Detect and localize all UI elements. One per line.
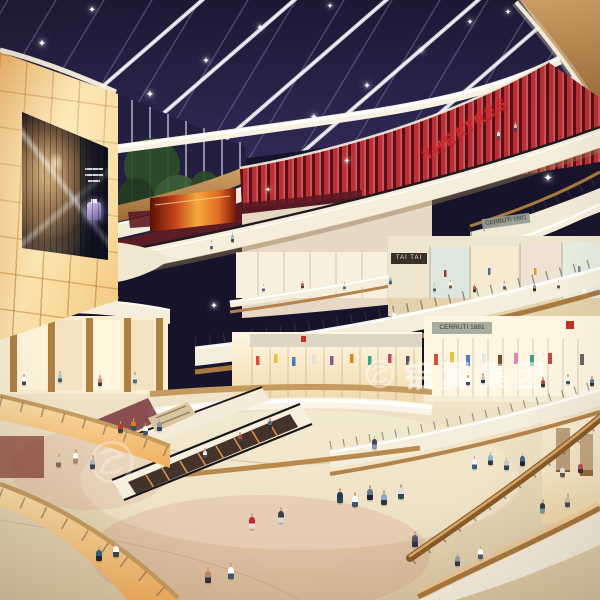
shopper-figure [381, 490, 387, 505]
shopper-figure [96, 546, 102, 561]
shopper-figure [520, 453, 525, 466]
shopper-figure [131, 418, 136, 430]
shopper-figure [533, 283, 536, 291]
shopper-figure [143, 423, 148, 435]
shopper-figure [90, 455, 95, 469]
shopper-figure [557, 280, 560, 288]
shopper-figure [472, 456, 477, 469]
shopper-figure [372, 436, 377, 449]
shopper-figure [118, 421, 123, 433]
shopper-figure [98, 375, 102, 386]
shopper-figure [497, 130, 500, 139]
red-store-logo [566, 321, 574, 329]
shopper-figure [398, 484, 404, 499]
shopper-figure [157, 419, 162, 431]
shopper-figure [389, 277, 392, 284]
shopper-figure [58, 371, 62, 382]
red-store-logo-small [301, 336, 306, 342]
shopper-figure [337, 488, 343, 503]
watermark: 铝翼集团 [362, 352, 552, 396]
shopper-figure [433, 283, 436, 291]
shopper-figure [301, 281, 304, 288]
shopper-figure [578, 461, 583, 473]
shopper-figure [22, 374, 26, 385]
shopper-figure [590, 376, 594, 386]
mall-atrium-rendering: THEATRES TAI TAI CERRUTI 1881 CERRUTI 18… [0, 0, 600, 600]
shopper-figure [343, 282, 346, 289]
shopper-figure [473, 284, 476, 292]
shopper-figure [238, 432, 242, 442]
shopper-figure [514, 122, 517, 131]
shopper-figure [113, 542, 119, 557]
shopper-figure [73, 449, 78, 463]
shopper-figure [560, 465, 565, 477]
shopper-figure [504, 457, 509, 470]
shopper-figure [278, 507, 284, 523]
shopper-figure [352, 492, 358, 507]
shopper-figure [540, 499, 545, 513]
shopper-figure [449, 280, 452, 288]
shopper-figure [231, 233, 234, 242]
shopper-figure [203, 448, 207, 458]
shopper-figure [249, 513, 255, 529]
shopper-figure [455, 553, 460, 566]
store-sign-cerruti: CERRUTI 1881 [432, 322, 492, 334]
shopper-figure [481, 373, 485, 383]
shopper-figure [566, 374, 570, 384]
shopper-figure [262, 284, 265, 291]
watermark-swirl-logo [362, 356, 398, 392]
shopper-figure [210, 240, 213, 249]
shopper-figure [228, 563, 234, 579]
shopper-figure [478, 546, 483, 559]
shopper-figure [412, 531, 418, 547]
shopper-figure [503, 281, 506, 289]
shopper-figure [541, 377, 545, 387]
shopper-figure [205, 567, 211, 583]
shopper-figure [565, 493, 570, 507]
shopper-figure [268, 418, 272, 428]
shopper-figure [133, 372, 137, 383]
shopper-figure [488, 452, 493, 465]
shopper-figure [367, 485, 373, 500]
shopper-figure [466, 375, 470, 385]
store-sign-tai-tai: TAI TAI [391, 253, 427, 264]
watermark-text: 铝翼集团 [404, 352, 552, 396]
shopper-figure [56, 453, 61, 467]
